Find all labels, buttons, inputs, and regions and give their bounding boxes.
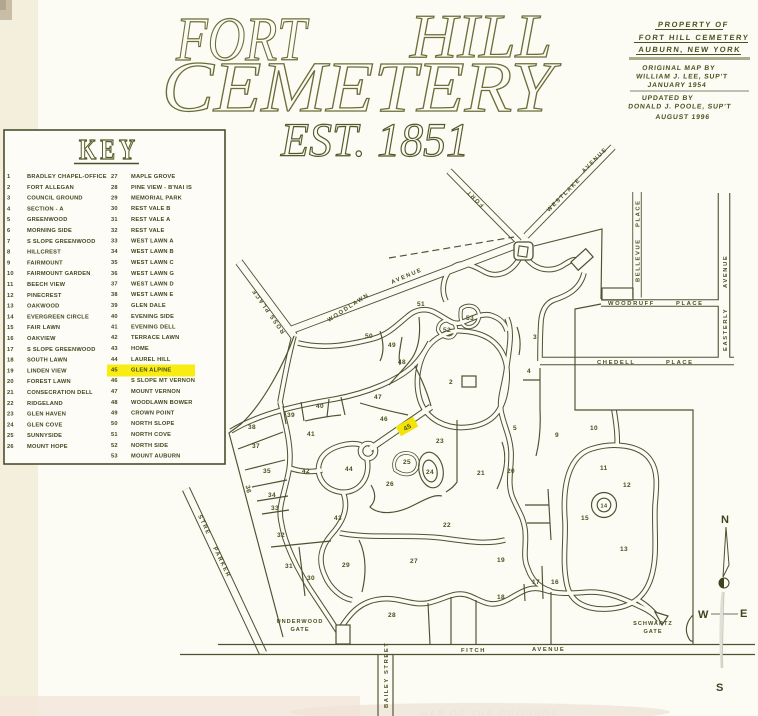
svg-text:20: 20 xyxy=(7,379,14,385)
svg-text:N: N xyxy=(721,514,729,526)
svg-text:PLACE: PLACE xyxy=(666,360,694,366)
svg-text:51: 51 xyxy=(111,432,118,438)
svg-text:17: 17 xyxy=(7,347,14,353)
svg-text:S SLOPE MT VERNON: S SLOPE MT VERNON xyxy=(131,378,195,384)
svg-text:32: 32 xyxy=(111,228,118,234)
svg-text:REST VALE: REST VALE xyxy=(131,228,164,234)
svg-text:NORTH COVE: NORTH COVE xyxy=(131,432,171,438)
svg-text:22: 22 xyxy=(443,522,451,529)
svg-text:48: 48 xyxy=(111,400,118,406)
svg-text:35: 35 xyxy=(263,468,271,475)
svg-text:AUBURN, NEW YORK: AUBURN, NEW YORK xyxy=(638,45,742,54)
svg-text:41: 41 xyxy=(111,325,118,331)
svg-text:BELLEVUE: BELLEVUE xyxy=(636,238,642,282)
svg-text:GLEN DALE: GLEN DALE xyxy=(131,303,166,309)
svg-text:3: 3 xyxy=(7,196,10,202)
svg-text:EVERGREEN CIRCLE: EVERGREEN CIRCLE xyxy=(27,314,89,320)
svg-text:50: 50 xyxy=(365,333,373,340)
svg-text:51: 51 xyxy=(417,301,425,308)
svg-text:30: 30 xyxy=(307,575,315,582)
svg-text:5: 5 xyxy=(513,425,517,432)
svg-text:31: 31 xyxy=(111,217,118,223)
svg-text:WEST LAWN G: WEST LAWN G xyxy=(131,271,175,277)
svg-text:7: 7 xyxy=(7,239,10,245)
svg-text:PINECREST: PINECREST xyxy=(27,293,62,299)
svg-text:20: 20 xyxy=(507,468,515,475)
svg-text:34: 34 xyxy=(111,249,118,255)
svg-text:28: 28 xyxy=(111,185,118,191)
svg-text:6: 6 xyxy=(7,228,10,234)
svg-text:12: 12 xyxy=(623,482,631,489)
svg-text:FORT ALLEGAN: FORT ALLEGAN xyxy=(27,185,74,191)
svg-text:DONALD J. POOLE, SUP'T: DONALD J. POOLE, SUP'T xyxy=(628,104,732,111)
svg-text:30: 30 xyxy=(111,206,118,212)
svg-text:9: 9 xyxy=(7,260,10,266)
svg-text:SECTION - A: SECTION - A xyxy=(27,206,64,212)
svg-text:3: 3 xyxy=(533,334,537,341)
svg-text:10: 10 xyxy=(7,271,14,277)
svg-text:FOREST LAWN: FOREST LAWN xyxy=(27,379,71,385)
svg-text:CONSECRATION DELL: CONSECRATION DELL xyxy=(27,390,93,396)
svg-text:FAIRMOUNT: FAIRMOUNT xyxy=(27,260,63,266)
svg-text:50: 50 xyxy=(111,421,118,427)
svg-text:EVENING SIDE: EVENING SIDE xyxy=(131,314,174,320)
svg-text:24: 24 xyxy=(7,422,14,428)
svg-text:JANUARY 1954: JANUARY 1954 xyxy=(647,82,707,89)
svg-text:OAKVIEW: OAKVIEW xyxy=(27,336,56,342)
svg-text:1: 1 xyxy=(7,174,10,180)
svg-text:10: 10 xyxy=(590,425,598,432)
svg-text:47: 47 xyxy=(111,389,118,395)
svg-text:WILLIAM J. LEE, SUP'T: WILLIAM J. LEE, SUP'T xyxy=(636,74,729,81)
svg-text:11: 11 xyxy=(7,282,13,288)
svg-text:34: 34 xyxy=(268,492,276,499)
svg-text:25: 25 xyxy=(403,459,411,466)
svg-text:24: 24 xyxy=(426,469,434,476)
svg-text:39: 39 xyxy=(287,412,295,419)
svg-text:MEMORIAL PARK: MEMORIAL PARK xyxy=(131,196,183,202)
svg-text:43: 43 xyxy=(111,346,118,352)
svg-text:PROPERTY OF: PROPERTY OF xyxy=(658,20,730,29)
svg-text:26: 26 xyxy=(386,481,394,488)
svg-text:40: 40 xyxy=(111,314,118,320)
svg-text:MORNING SIDE: MORNING SIDE xyxy=(27,228,72,234)
svg-text:2: 2 xyxy=(449,379,453,386)
svg-text:2: 2 xyxy=(7,185,10,191)
svg-text:45: 45 xyxy=(111,368,118,374)
svg-text:49: 49 xyxy=(388,342,396,349)
svg-text:BEECH VIEW: BEECH VIEW xyxy=(27,282,66,288)
svg-text:EST. 1851: EST. 1851 xyxy=(280,114,469,167)
svg-text:25: 25 xyxy=(7,433,14,439)
svg-text:GATE: GATE xyxy=(643,629,662,635)
svg-text:43: 43 xyxy=(334,515,342,522)
svg-text:AVENUE: AVENUE xyxy=(723,255,729,288)
svg-text:W: W xyxy=(698,609,709,621)
svg-text:UNDERWOOD: UNDERWOOD xyxy=(277,619,324,625)
svg-text:BAILEY STREET: BAILEY STREET xyxy=(384,642,390,708)
svg-text:29: 29 xyxy=(342,562,350,569)
svg-text:4: 4 xyxy=(527,368,531,375)
svg-text:RIDGELAND: RIDGELAND xyxy=(27,401,63,407)
svg-text:49: 49 xyxy=(111,411,118,417)
svg-text:GLEN ALPINE: GLEN ALPINE xyxy=(131,368,171,374)
svg-text:32: 32 xyxy=(277,532,285,539)
svg-text:16: 16 xyxy=(551,579,559,586)
svg-text:FITCH: FITCH xyxy=(461,648,486,654)
svg-text:AUGUST 1996: AUGUST 1996 xyxy=(655,114,710,121)
svg-text:17: 17 xyxy=(532,579,540,586)
svg-text:33: 33 xyxy=(271,505,279,512)
svg-text:GREENWOOD: GREENWOOD xyxy=(27,217,68,223)
svg-text:47: 47 xyxy=(374,394,382,401)
svg-text:CHEDELL: CHEDELL xyxy=(597,360,636,366)
svg-text:LINDEN VIEW: LINDEN VIEW xyxy=(27,368,67,374)
svg-text:39: 39 xyxy=(111,303,118,309)
svg-text:TERRACE LAWN: TERRACE LAWN xyxy=(131,335,179,341)
svg-text:S SLOPE GREENWOOD: S SLOPE GREENWOOD xyxy=(27,239,96,245)
svg-text:E: E xyxy=(740,608,747,620)
svg-text:11: 11 xyxy=(600,465,608,472)
svg-text:52: 52 xyxy=(111,443,118,449)
svg-text:36: 36 xyxy=(111,271,118,277)
svg-text:COUNCIL GROUND: COUNCIL GROUND xyxy=(27,196,83,202)
svg-text:GLEN HAVEN: GLEN HAVEN xyxy=(27,412,66,418)
svg-text:FAIR LAWN: FAIR LAWN xyxy=(27,325,60,331)
svg-text:MOUNT AUBURN: MOUNT AUBURN xyxy=(131,454,181,460)
svg-text:WOODLAWN BOWER: WOODLAWN BOWER xyxy=(131,400,193,406)
svg-text:52: 52 xyxy=(443,327,451,334)
svg-text:38: 38 xyxy=(248,424,256,431)
svg-text:37: 37 xyxy=(252,443,260,450)
svg-text:23: 23 xyxy=(436,438,444,445)
svg-text:S: S xyxy=(716,682,723,694)
svg-text:53: 53 xyxy=(111,454,118,460)
svg-text:13: 13 xyxy=(620,546,628,553)
svg-text:44: 44 xyxy=(345,466,353,473)
svg-text:WEST LAWN D: WEST LAWN D xyxy=(131,282,174,288)
svg-text:41: 41 xyxy=(307,431,315,438)
svg-text:46: 46 xyxy=(380,416,388,423)
svg-text:16: 16 xyxy=(7,336,14,342)
svg-text:23: 23 xyxy=(7,412,14,418)
svg-text:AVENUE: AVENUE xyxy=(532,647,565,653)
svg-text:21: 21 xyxy=(477,470,485,477)
svg-text:33: 33 xyxy=(111,239,118,245)
svg-text:CROWN POINT: CROWN POINT xyxy=(131,411,175,417)
svg-text:REST VALE A: REST VALE A xyxy=(131,217,170,223)
svg-text:S SLOPE GREENWOOD: S SLOPE GREENWOOD xyxy=(27,347,96,353)
svg-text:SOUTH LAWN: SOUTH LAWN xyxy=(27,358,67,364)
svg-text:27: 27 xyxy=(410,558,418,565)
svg-text:GLEN COVE: GLEN COVE xyxy=(27,422,62,428)
svg-text:18: 18 xyxy=(7,358,14,364)
svg-text:MOUNT VERNON: MOUNT VERNON xyxy=(131,389,180,395)
svg-text:13: 13 xyxy=(7,304,14,310)
svg-text:29: 29 xyxy=(111,196,118,202)
svg-text:8: 8 xyxy=(7,250,10,256)
svg-text:21: 21 xyxy=(7,390,14,396)
svg-text:28: 28 xyxy=(388,612,396,619)
svg-text:EVENING DELL: EVENING DELL xyxy=(131,325,176,331)
svg-text:15: 15 xyxy=(581,515,589,522)
svg-text:FAIRMOUNT GARDEN: FAIRMOUNT GARDEN xyxy=(27,271,91,277)
svg-text:PINE VIEW - B'NAI IS: PINE VIEW - B'NAI IS xyxy=(131,185,192,191)
svg-text:19: 19 xyxy=(7,368,14,374)
svg-text:19: 19 xyxy=(497,557,505,564)
svg-text:MOUNT HOPE: MOUNT HOPE xyxy=(27,444,68,450)
svg-text:PLACE: PLACE xyxy=(676,301,704,307)
svg-text:5: 5 xyxy=(7,217,10,223)
svg-text:LAUREL HILL: LAUREL HILL xyxy=(131,357,171,363)
svg-text:26: 26 xyxy=(7,444,14,450)
svg-text:SUNNYSIDE: SUNNYSIDE xyxy=(27,433,62,439)
svg-text:NORTH SLOPE: NORTH SLOPE xyxy=(131,421,175,427)
svg-text:PLACE: PLACE xyxy=(636,199,642,227)
svg-text:37: 37 xyxy=(111,282,118,288)
svg-text:35: 35 xyxy=(111,260,118,266)
svg-text:NORTH SIDE: NORTH SIDE xyxy=(131,443,168,449)
svg-text:42: 42 xyxy=(111,335,118,341)
svg-text:42: 42 xyxy=(302,468,310,475)
svg-text:22: 22 xyxy=(7,401,14,407)
svg-text:MAP OF THE GROUNDS: MAP OF THE GROUNDS xyxy=(420,709,559,716)
svg-text:GATE: GATE xyxy=(290,627,309,633)
svg-text:38: 38 xyxy=(111,292,118,298)
svg-text:53: 53 xyxy=(466,315,474,322)
svg-text:40: 40 xyxy=(316,403,324,410)
svg-text:HILLCREST: HILLCREST xyxy=(27,250,61,256)
svg-text:MAPLE GROVE: MAPLE GROVE xyxy=(131,174,175,180)
svg-text:SCHWARTZ: SCHWARTZ xyxy=(633,621,673,627)
svg-text:BRADLEY CHAPEL-OFFICE: BRADLEY CHAPEL-OFFICE xyxy=(27,174,107,180)
svg-text:46: 46 xyxy=(111,378,118,384)
svg-text:12: 12 xyxy=(7,293,14,299)
svg-text:15: 15 xyxy=(7,325,14,331)
svg-text:KEY: KEY xyxy=(79,135,139,166)
svg-text:WOODRUFF: WOODRUFF xyxy=(608,301,655,307)
svg-text:44: 44 xyxy=(111,357,118,363)
svg-text:UPDATED BY: UPDATED BY xyxy=(641,95,693,102)
svg-text:WEST LAWN A: WEST LAWN A xyxy=(131,239,174,245)
svg-text:WEST LAWN B: WEST LAWN B xyxy=(131,249,174,255)
svg-text:HOME: HOME xyxy=(131,346,149,352)
svg-text:WEST LAWN E: WEST LAWN E xyxy=(131,292,174,298)
svg-text:48: 48 xyxy=(398,359,406,366)
svg-text:WEST LAWN C: WEST LAWN C xyxy=(131,260,174,266)
svg-text:ORIGINAL MAP BY: ORIGINAL MAP BY xyxy=(642,65,716,72)
svg-text:14: 14 xyxy=(601,504,609,510)
svg-text:FORT HILL CEMETERY: FORT HILL CEMETERY xyxy=(638,33,749,42)
svg-text:14: 14 xyxy=(7,314,14,320)
svg-text:OAKWOOD: OAKWOOD xyxy=(27,304,60,310)
svg-text:9: 9 xyxy=(555,432,559,439)
svg-text:27: 27 xyxy=(111,174,118,180)
svg-text:31: 31 xyxy=(285,563,293,570)
svg-text:18: 18 xyxy=(497,594,505,601)
svg-text:EASTERLY: EASTERLY xyxy=(723,308,729,351)
svg-text:REST VALE B: REST VALE B xyxy=(131,206,171,212)
